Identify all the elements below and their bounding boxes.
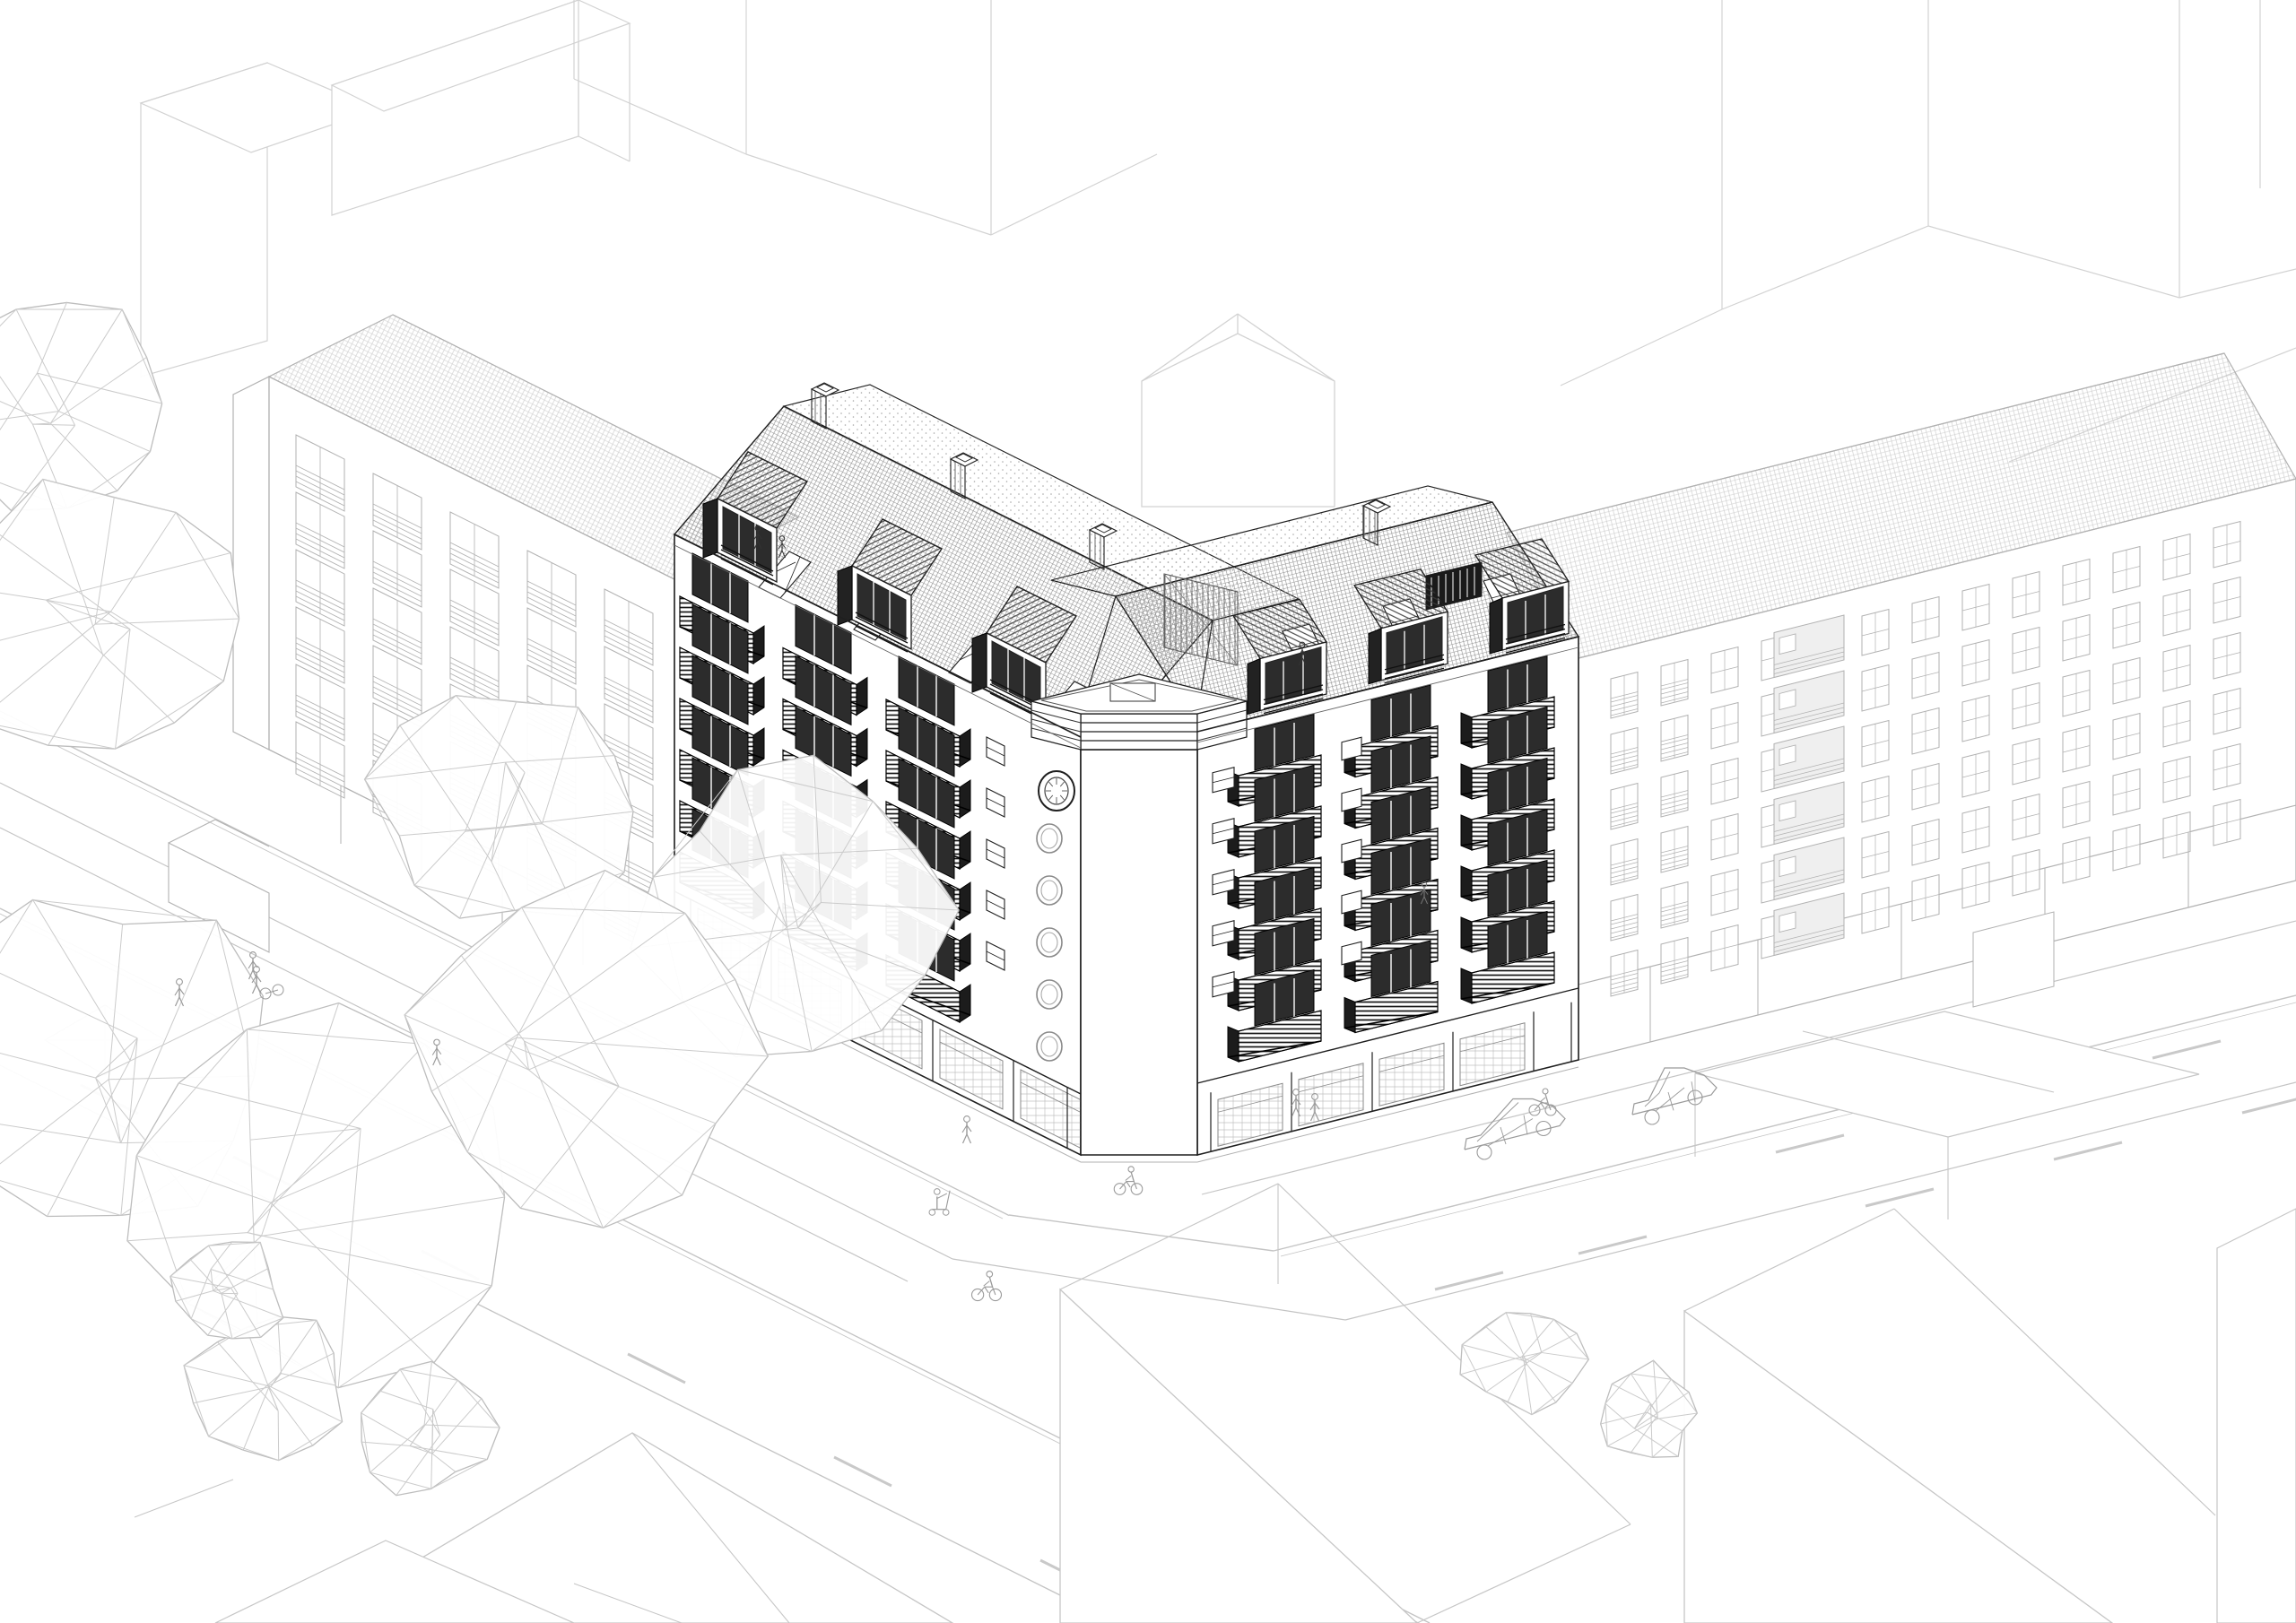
axonometric-scene xyxy=(0,0,2296,1623)
cyclist xyxy=(1114,1167,1142,1195)
tree xyxy=(0,479,239,749)
bush xyxy=(1601,1360,1698,1457)
right-context-building xyxy=(1507,353,2296,1060)
architectural-drawing xyxy=(0,0,2296,1623)
tree xyxy=(0,302,162,510)
bush xyxy=(184,1316,342,1460)
cyclist xyxy=(972,1271,1002,1301)
pedestrian xyxy=(962,1116,971,1143)
bush xyxy=(361,1361,500,1495)
bush xyxy=(1460,1313,1588,1415)
scooter-rider xyxy=(929,1189,950,1216)
